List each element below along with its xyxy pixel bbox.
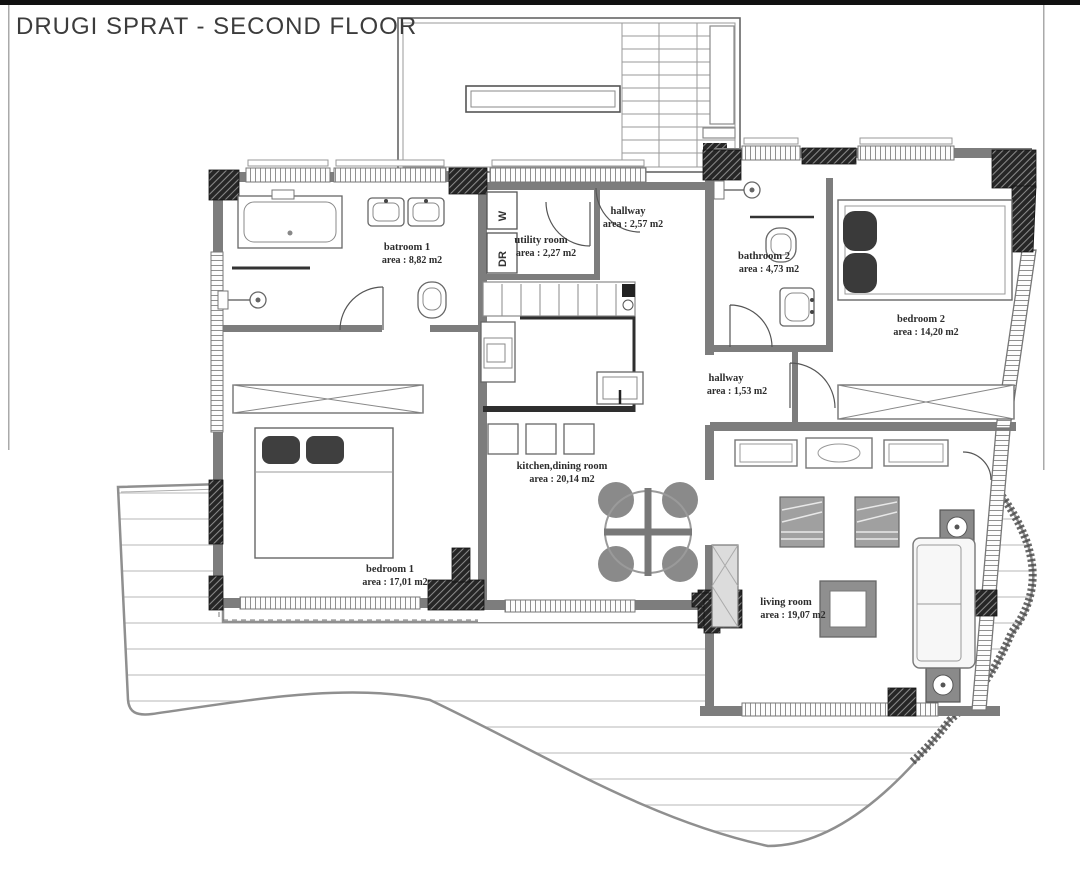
pillow — [262, 436, 300, 464]
page-title: DRUGI SPRAT - SECOND FLOOR — [16, 13, 417, 40]
svg-text:area : 19,07 m2: area : 19,07 m2 — [760, 610, 825, 621]
svg-text:area : 2,57 m2: area : 2,57 m2 — [603, 219, 663, 230]
sofa — [913, 538, 975, 668]
room-label: bathroom 2 — [738, 251, 790, 262]
chair — [662, 482, 698, 518]
chair — [598, 482, 634, 518]
tv-unit — [712, 545, 738, 627]
svg-text:area : 14,20 m2: area : 14,20 m2 — [893, 327, 958, 338]
pillow — [843, 253, 877, 293]
room-label: kitchen,dining room — [517, 461, 608, 472]
washer-label: W — [497, 210, 509, 221]
pillow — [843, 211, 877, 251]
washer — [487, 192, 517, 229]
chair — [598, 546, 634, 582]
roof-void — [398, 18, 740, 175]
speaker — [926, 668, 960, 702]
utility-appliances: W DR — [487, 192, 517, 273]
room-label: bedroom 2 — [897, 314, 945, 325]
sideboard — [806, 438, 872, 468]
room-label: utility room — [514, 235, 567, 246]
svg-text:area : 4,73 m2: area : 4,73 m2 — [739, 264, 799, 275]
floor-plan-drawing: W DR — [0, 0, 1080, 878]
pillow — [306, 436, 344, 464]
svg-text:area : 8,82 m2: area : 8,82 m2 — [382, 255, 442, 266]
skylight — [466, 86, 620, 112]
floor-plan-sheet: W DR — [0, 0, 1080, 878]
room-label: hallway — [708, 373, 744, 384]
svg-text:area : 1,53 m2: area : 1,53 m2 — [707, 386, 767, 397]
armchair — [855, 497, 899, 547]
chair — [662, 546, 698, 582]
dining-set — [598, 482, 698, 582]
room-label: hallway — [610, 206, 646, 217]
svg-text:area : 2,27 m2: area : 2,27 m2 — [516, 248, 576, 259]
room-label: batroom 1 — [384, 242, 430, 253]
room-label: living room — [760, 597, 812, 608]
svg-text:area : 17,01 m2: area : 17,01 m2 — [362, 577, 427, 588]
armchair — [780, 497, 824, 547]
svg-text:area : 20,14 m2: area : 20,14 m2 — [529, 474, 594, 485]
dryer-label: DR — [497, 251, 509, 267]
room-label: bedroom 1 — [366, 564, 414, 575]
